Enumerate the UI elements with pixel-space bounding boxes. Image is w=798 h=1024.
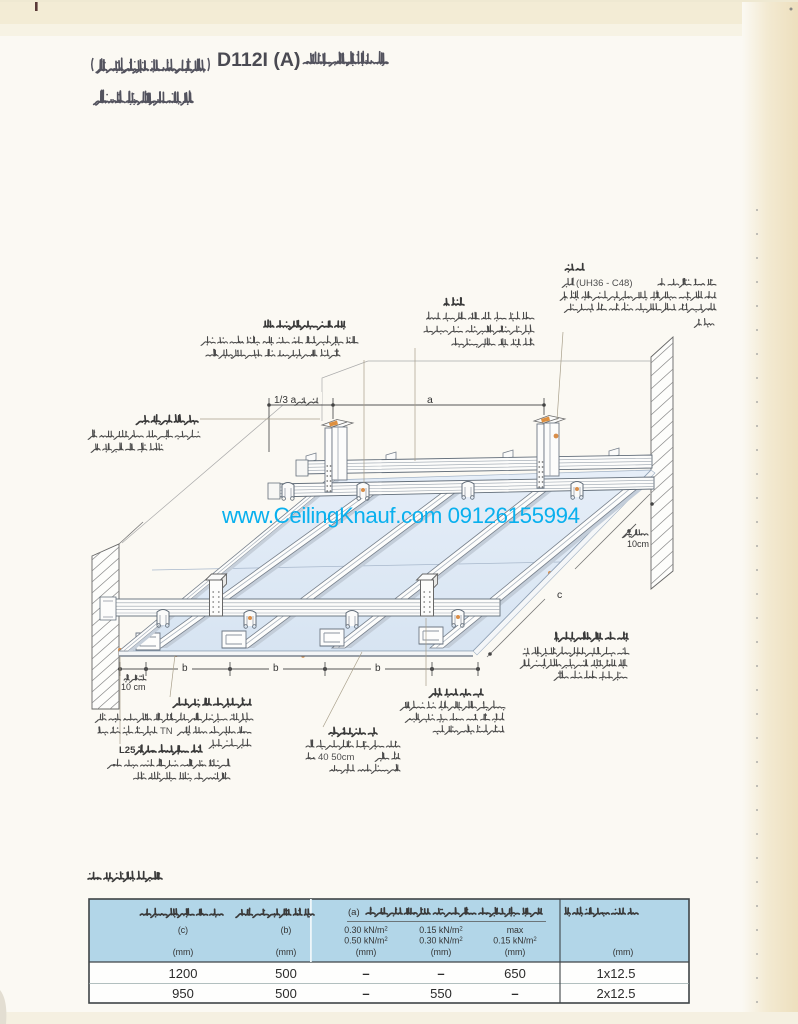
svg-text:950: 950 bbox=[172, 986, 194, 1001]
svg-text:(mm): (mm) bbox=[356, 947, 377, 957]
svg-text:D112I (A): D112I (A) bbox=[217, 49, 300, 71]
svg-text:500: 500 bbox=[275, 966, 297, 981]
svg-text:(mm): (mm) bbox=[505, 947, 526, 957]
svg-text:–: – bbox=[437, 966, 444, 981]
svg-text:0.15 kN/m2: 0.15 kN/m2 bbox=[493, 936, 537, 946]
svg-text:1x12.5: 1x12.5 bbox=[596, 966, 635, 981]
svg-text:(a): (a) bbox=[348, 907, 360, 918]
svg-text:(UH36 - C48): (UH36 - C48) bbox=[576, 278, 633, 289]
svg-text:650: 650 bbox=[504, 966, 526, 981]
svg-text:L25: L25 bbox=[119, 745, 136, 756]
svg-text:(mm): (mm) bbox=[613, 947, 634, 957]
svg-text:(b): (b) bbox=[281, 925, 292, 935]
svg-text:1200: 1200 bbox=[169, 966, 198, 981]
svg-text:550: 550 bbox=[430, 986, 452, 1001]
svg-text:b: b bbox=[182, 663, 188, 674]
svg-text:(c): (c) bbox=[178, 925, 188, 935]
svg-text:c: c bbox=[557, 589, 562, 601]
svg-text:–: – bbox=[511, 986, 518, 1001]
svg-text:(mm): (mm) bbox=[276, 947, 297, 957]
svg-text:(mm): (mm) bbox=[173, 947, 194, 957]
svg-text:(mm): (mm) bbox=[431, 947, 452, 957]
svg-text:500: 500 bbox=[275, 986, 297, 1001]
svg-text:10 cm: 10 cm bbox=[121, 682, 146, 692]
svg-text:0.50 kN/m2: 0.50 kN/m2 bbox=[344, 936, 388, 946]
svg-text:10cm: 10cm bbox=[627, 539, 649, 549]
svg-text:2x12.5: 2x12.5 bbox=[596, 986, 635, 1001]
svg-text:–: – bbox=[362, 966, 369, 981]
svg-text:0.30 kN/m2: 0.30 kN/m2 bbox=[419, 936, 463, 946]
svg-text:TN: TN bbox=[160, 726, 173, 737]
svg-text:1/3 a: 1/3 a bbox=[274, 395, 297, 406]
svg-text:–: – bbox=[362, 986, 369, 1001]
svg-text:0.15 kN/m2: 0.15 kN/m2 bbox=[419, 925, 463, 935]
svg-text:b: b bbox=[375, 663, 381, 674]
svg-text:40 50cm: 40 50cm bbox=[318, 752, 355, 763]
svg-text:b: b bbox=[273, 663, 279, 674]
svg-text:0.30 kN/m2: 0.30 kN/m2 bbox=[344, 925, 388, 935]
svg-text:www.CeilingKnauf.com 091261559: www.CeilingKnauf.com 09126155994 bbox=[221, 503, 580, 528]
svg-text:a: a bbox=[427, 394, 433, 406]
svg-text:max: max bbox=[507, 925, 524, 935]
